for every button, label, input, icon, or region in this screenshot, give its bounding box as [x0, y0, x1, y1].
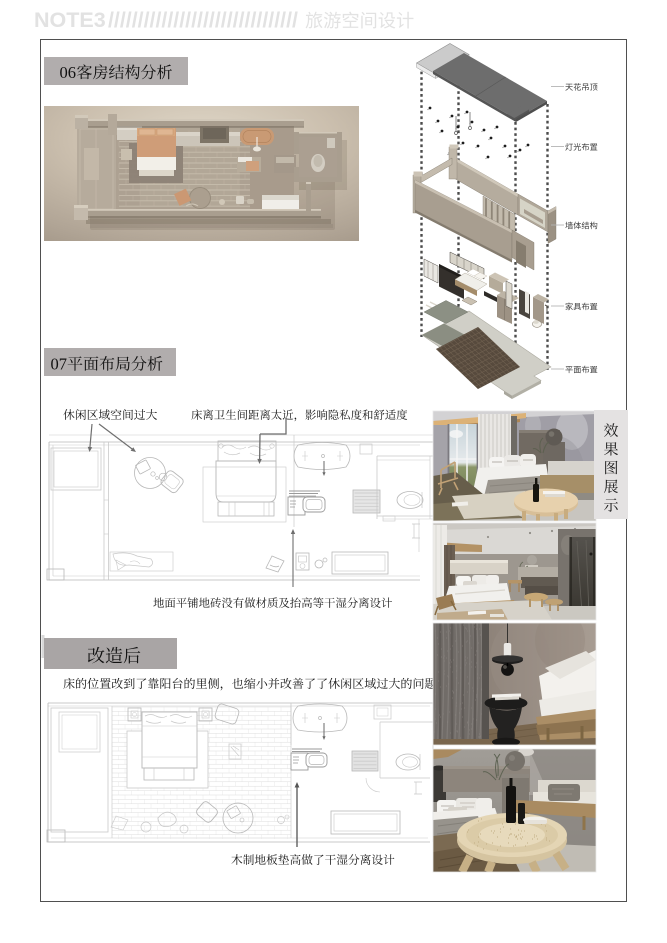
svg-text:NOTE3: NOTE3: [34, 8, 106, 32]
svg-text://////////////////////////////: ////////////////////////////////: [108, 8, 298, 32]
svg-text:07: 07: [51, 355, 68, 374]
svg-text:06: 06: [60, 63, 77, 82]
